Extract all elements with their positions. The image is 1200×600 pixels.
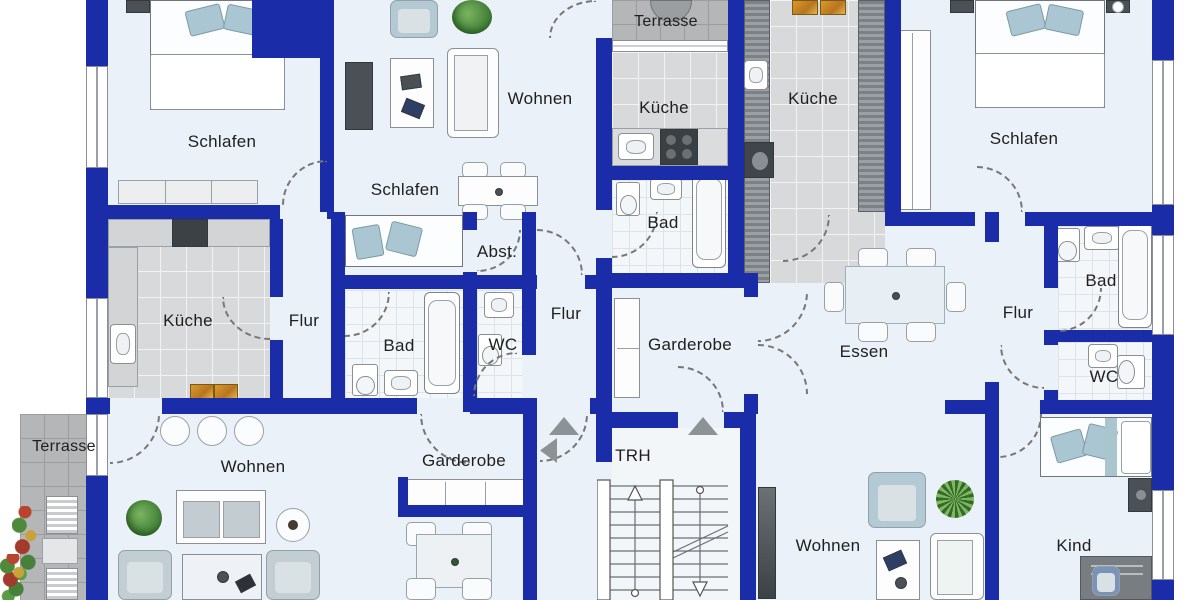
divider: [445, 482, 446, 506]
terrace-chair: [46, 496, 78, 534]
room-label-flur-center: Flur: [551, 304, 581, 324]
burner: [682, 135, 692, 145]
terrace-table: [42, 538, 78, 564]
bath-sink: [650, 178, 682, 200]
wc-sink: [1088, 344, 1118, 368]
wall: [728, 0, 744, 288]
stove: [744, 142, 774, 178]
child-bed: [1040, 417, 1152, 477]
nightstand: [950, 0, 974, 13]
sofa: [447, 48, 499, 138]
wall: [327, 205, 331, 219]
wall: [398, 505, 528, 517]
sofa-cushion: [454, 55, 488, 131]
kitchen-sink: [618, 133, 654, 160]
bathtub: [424, 292, 460, 394]
dining-table: [458, 176, 538, 206]
desk-decor: [895, 577, 907, 589]
fruit-crate: [792, 0, 818, 15]
wall: [740, 412, 756, 600]
wall: [612, 166, 728, 180]
wall: [596, 38, 612, 210]
window: [86, 298, 108, 398]
chair: [858, 248, 888, 268]
room-label-wc-middle: WC: [489, 335, 518, 355]
chair: [946, 282, 966, 312]
blanket: [975, 53, 1105, 108]
kitchen-cabinets: [858, 0, 885, 212]
table-decor: [451, 558, 459, 566]
sideboard: [118, 180, 258, 204]
wall: [331, 212, 345, 412]
room-label-schlafen-top-right: Schlafen: [990, 129, 1059, 149]
wall: [612, 273, 744, 288]
desk-items: [400, 74, 422, 91]
room-label-kueche-left: Küche: [163, 311, 213, 331]
room-label-terrasse-bottom-left: Terrasse: [32, 438, 96, 456]
room-label-wohnen-bottom-right: Wohnen: [796, 536, 861, 556]
wardrobe: [614, 298, 640, 398]
bathtub: [1118, 222, 1152, 328]
wall: [985, 212, 999, 242]
burner: [682, 149, 692, 159]
room-label-wohnen-bottom-left: Wohnen: [221, 457, 286, 477]
single-bed: [345, 215, 463, 267]
round-pouf: [234, 416, 264, 446]
room-label-kind: Kind: [1056, 536, 1091, 556]
nightstand: [126, 0, 150, 13]
room-label-flur-right: Flur: [1003, 303, 1033, 323]
blanket: [150, 54, 285, 110]
wall: [270, 219, 283, 297]
room-label-bad-top: Bad: [647, 213, 678, 233]
room-label-essen: Essen: [840, 342, 889, 362]
tv-unit: [758, 487, 776, 599]
room-label-abstellraum: Abst.: [477, 242, 517, 262]
wall: [270, 340, 283, 398]
chair: [906, 322, 936, 342]
desk: [390, 58, 434, 128]
staircase: [597, 478, 740, 600]
armchair: [118, 550, 172, 600]
wall: [1040, 400, 1152, 414]
divider: [211, 181, 212, 203]
chair: [406, 578, 436, 600]
wall: [585, 275, 596, 289]
remote: [235, 574, 256, 593]
bath-sink: [384, 370, 418, 396]
wall: [331, 275, 537, 289]
window: [1152, 235, 1174, 335]
lamp: [1136, 490, 1146, 500]
coffee-table: [182, 554, 262, 600]
window: [1152, 490, 1174, 580]
kitchen-sink: [110, 324, 136, 364]
sofa: [930, 533, 984, 600]
terrace-window: [612, 40, 728, 52]
window: [86, 66, 108, 168]
wall: [985, 414, 999, 600]
wall: [744, 273, 758, 297]
room-label-garderobe-upper: Garderobe: [648, 335, 732, 355]
pillow: [1044, 4, 1085, 37]
wall: [724, 412, 756, 428]
desk-chair: [1092, 566, 1120, 596]
divider: [912, 33, 913, 209]
wall: [463, 212, 477, 230]
wall: [596, 258, 612, 412]
sofa-cushion: [183, 501, 220, 538]
toilet: [616, 182, 640, 216]
wall: [945, 400, 998, 414]
wall: [1025, 212, 1152, 226]
burner: [666, 135, 676, 145]
burner: [666, 149, 676, 159]
sofa-cushion: [937, 540, 973, 595]
burner: [752, 152, 768, 170]
wall: [162, 398, 417, 414]
round-pouf: [160, 416, 190, 446]
room-label-schlafen-middle: Schlafen: [371, 180, 440, 200]
wall: [108, 205, 280, 219]
plant: [126, 500, 162, 536]
room-label-bad-middle: Bad: [383, 336, 414, 356]
wall: [885, 0, 901, 226]
wc-sink: [484, 292, 514, 318]
terrace-chair: [46, 568, 78, 600]
kitchen-counter: [108, 247, 138, 387]
divider: [617, 348, 639, 349]
room-label-kueche-top-right: Küche: [788, 89, 838, 109]
armchair: [868, 472, 926, 528]
sofa: [176, 490, 266, 544]
toilet: [352, 364, 378, 396]
bed-pillow-white: [1121, 421, 1151, 474]
flower: [288, 520, 298, 530]
divider: [485, 482, 486, 506]
wardrobe: [345, 62, 373, 130]
kitchen-sink: [744, 60, 768, 90]
wall: [744, 394, 758, 414]
sofa-cushion: [223, 501, 260, 538]
chair: [858, 322, 888, 342]
nightstand: [1128, 478, 1152, 512]
pillow: [351, 224, 384, 260]
window: [1152, 60, 1174, 205]
wall: [885, 212, 975, 226]
room-label-schlafen-top-left: Schlafen: [188, 132, 257, 152]
room-label-bad-right: Bad: [1085, 271, 1116, 291]
armchair: [390, 0, 438, 38]
wall: [470, 398, 537, 414]
desk: [876, 540, 920, 600]
wall: [86, 398, 110, 414]
laptop: [401, 98, 425, 119]
pillow: [1005, 3, 1046, 37]
room-label-treppenhaus: TRH: [615, 446, 651, 466]
plant: [452, 0, 492, 34]
bed-band: [1105, 418, 1117, 476]
round-pouf: [197, 416, 227, 446]
cooker-hood: [172, 219, 208, 247]
fruit-crate: [190, 384, 214, 399]
flower-table: [276, 508, 310, 542]
pillow: [385, 221, 423, 258]
room-label-wc-right: WC: [1090, 367, 1119, 387]
pillow: [184, 3, 225, 37]
bathtub: [692, 170, 726, 268]
wall: [252, 0, 320, 58]
flower-box: [0, 554, 26, 600]
room-label-wohnen-top: Wohnen: [508, 89, 573, 109]
armchair: [266, 550, 320, 600]
laptop: [883, 550, 907, 572]
fruit-crate: [214, 384, 238, 399]
bath-sink: [1084, 226, 1120, 250]
toilet: [1117, 355, 1145, 389]
dining-table: [845, 266, 945, 324]
plant: [936, 480, 974, 518]
wall: [596, 412, 678, 428]
room-label-kueche-top-center: Küche: [639, 98, 689, 118]
divider: [165, 181, 166, 203]
chair: [824, 282, 844, 312]
room-label-terrasse-top: Terrasse: [634, 13, 698, 31]
bedside-lamp: [1112, 1, 1124, 13]
table-decor: [892, 292, 900, 300]
floor-plan: Schlafen Wohnen Terrasse Küche Küche Sch…: [0, 0, 1200, 600]
chair: [906, 248, 936, 268]
room-label-garderobe-lower: Garderobe: [422, 451, 506, 471]
chair: [462, 578, 492, 600]
double-bed: [975, 0, 1105, 108]
stove: [660, 129, 698, 165]
table-decor: [495, 188, 503, 196]
fruit-crate: [820, 0, 846, 15]
room-label-flur-left: Flur: [289, 311, 319, 331]
table-decor: [217, 571, 229, 583]
sideboard: [404, 479, 526, 507]
